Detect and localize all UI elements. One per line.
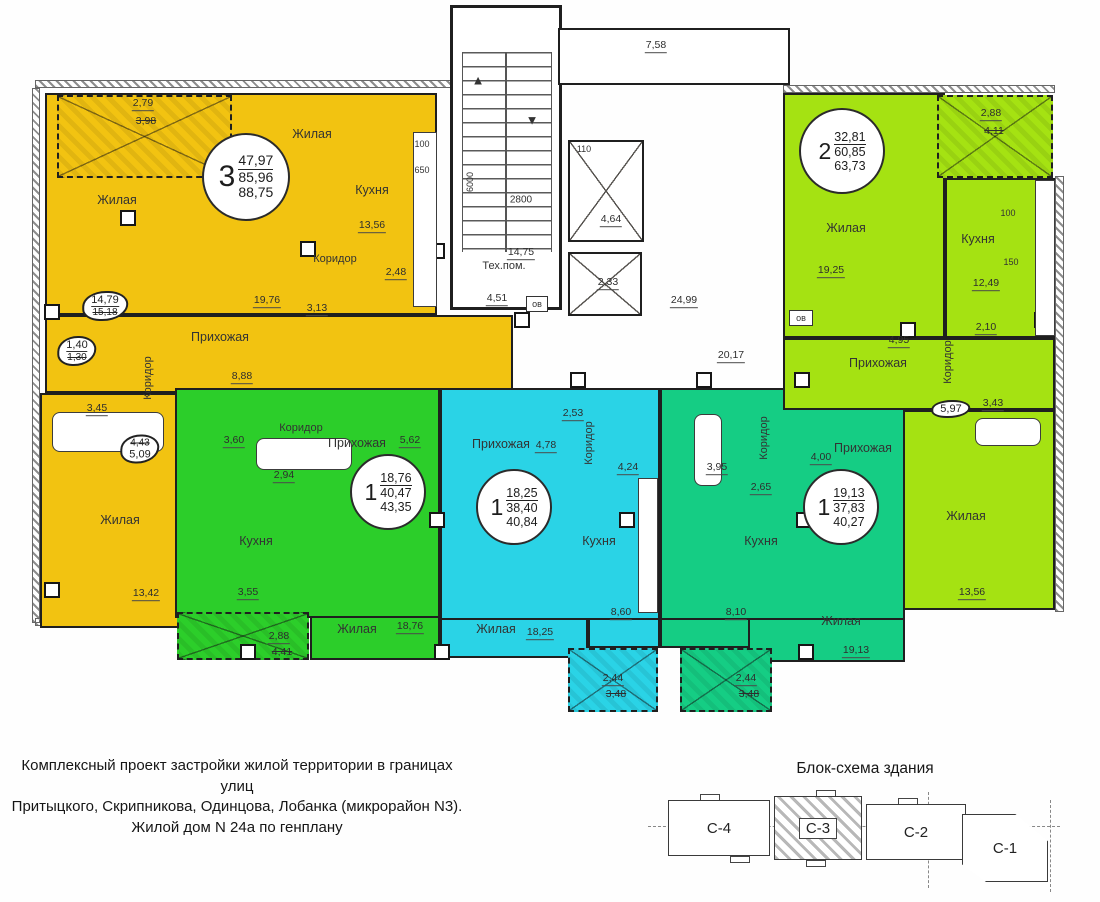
room-area: 12,49 (972, 277, 1000, 291)
room-label: Прихожая (834, 441, 892, 455)
room-label: Кухня (744, 534, 777, 548)
room-area: 19,25 (817, 264, 845, 278)
dimension: 3,13 (306, 302, 328, 316)
room-area: 4,24 (617, 461, 639, 475)
room-label: Жилая (826, 221, 866, 235)
badge-living-area: 19,13 (833, 486, 864, 501)
kitchen-counter (638, 478, 658, 613)
room-area: 4,51 (486, 292, 508, 306)
column-marker (570, 372, 586, 388)
dimension: 2,10 (975, 321, 997, 335)
column-marker (798, 644, 814, 660)
room-area: 4,64 (600, 213, 622, 227)
room-label: Прихожая (191, 330, 249, 344)
scheme-block-c4: С-4 (668, 800, 770, 856)
column-marker (794, 372, 810, 388)
badge-room-count: 1 (817, 494, 830, 521)
scheme-block-label: С-2 (904, 824, 928, 841)
room-area: 2,48 (385, 266, 407, 280)
wall-hatch (783, 85, 1055, 93)
room-area: 19,13 (842, 644, 870, 658)
balcony-area-old: 3,48 (739, 688, 759, 700)
project-line-3: Жилой дом N 24а по генплану (6, 818, 468, 839)
apartment-badge-green: 1 18,76 40,47 43,35 (350, 454, 426, 530)
column-marker (44, 582, 60, 598)
badge-total-area: 63,73 (834, 159, 865, 173)
balcony-area-old: 3,98 (136, 115, 156, 127)
room-label: Кухня (582, 534, 615, 548)
ov-closet-core: ов (526, 296, 548, 312)
apartment-badge-lime: 2 32,81 60,85 63,73 (799, 108, 885, 194)
room-area: 18,25 (526, 626, 554, 640)
room-area: 13,56 (958, 586, 986, 600)
badge-living-area: 47,97 (238, 153, 273, 170)
scheme-block-c2: С-2 (866, 804, 966, 860)
room-area: 2,33 (597, 276, 619, 290)
stair-down-arrow: ▼ (526, 113, 539, 128)
scheme-block-label: С-3 (799, 818, 837, 839)
room-label: Коридор (583, 421, 595, 464)
room-area: 24,99 (670, 294, 698, 308)
scheme-notch (806, 860, 826, 867)
balcony-area: 2,79 (132, 97, 154, 111)
room-label: Коридор (942, 340, 954, 383)
dimension: 19,76 (253, 294, 281, 308)
room-area: 4,95 (888, 334, 910, 348)
area-new: 14,79 (91, 294, 119, 307)
balcony-teal (680, 648, 772, 712)
bathtub (694, 414, 722, 486)
room-label: Жилая (946, 509, 986, 523)
apartment-teal-kitchen-ext (660, 618, 752, 648)
balcony-area: 2,88 (268, 630, 290, 644)
project-line-2: Притыцкого, Скрипникова, Одинцова, Лобан… (6, 797, 468, 818)
scheme-title: Блок-схема здания (655, 760, 1075, 778)
wall-hatch (35, 80, 457, 88)
balcony-area-old: 4,41 (272, 646, 292, 658)
dimension: 3,55 (237, 586, 259, 600)
badge-living-area: 32,81 (834, 130, 865, 145)
room-label: Прихожая (849, 356, 907, 370)
room-area: 3,43 (982, 397, 1004, 411)
balcony-area: 2,44 (735, 672, 757, 686)
room-label: Кухня (239, 534, 272, 548)
scheme-block-c1: С-1 (962, 814, 1048, 882)
project-description: Комплексный проект застройки жилой терри… (6, 756, 468, 839)
room-area: 5,62 (399, 434, 421, 448)
room-label: Коридор (313, 253, 356, 265)
apartment-orange-hall (45, 315, 513, 393)
badge-total-area: 88,75 (238, 185, 273, 201)
room-area: 8,88 (231, 370, 253, 384)
dimension: 110 (577, 144, 591, 154)
badge-heated-area: 38,40 (506, 501, 537, 515)
appliance-dim: 100 (1000, 208, 1015, 218)
apartment-badge-teal: 1 19,13 37,83 40,27 (803, 469, 879, 545)
column-marker (120, 210, 136, 226)
badge-heated-area: 60,85 (834, 145, 865, 159)
room-label: Коридор (279, 422, 322, 434)
room-label: Жилая (337, 622, 377, 636)
room-area: 3,60 (223, 434, 245, 448)
dimension: 7,58 (645, 39, 667, 53)
room-label: Кухня (355, 183, 388, 197)
badge-room-count: 1 (490, 494, 503, 521)
bathtub (975, 418, 1041, 446)
badge-total-area: 40,27 (833, 515, 864, 529)
dimension: 2,94 (273, 469, 295, 483)
appliance-dim: 650 (414, 165, 429, 175)
room-label: Коридор (142, 356, 154, 399)
room-area: 20,17 (717, 349, 745, 363)
room-label: Жилая (97, 193, 137, 207)
scheme-notch (730, 856, 750, 863)
scheme-block-c3-highlighted: С-3 (774, 796, 862, 860)
badge-living-area: 18,25 (506, 486, 537, 501)
badge-total-area: 40,84 (506, 515, 537, 529)
scheme-block-label: С-4 (707, 820, 731, 837)
scheme-axis (1050, 800, 1051, 892)
room-label: Жилая (292, 127, 332, 141)
floor-plan-sheet: ▲ ▼ ов ов 3 47,97 85,96 88,75 1 18,76 4 (0, 0, 1100, 902)
kitchen-counter (1035, 180, 1055, 336)
area-old: 1,30 (67, 352, 86, 363)
badge-room-count: 2 (818, 138, 831, 165)
room-area: 4,78 (535, 439, 557, 453)
column-marker (619, 512, 635, 528)
room-label: Жилая (821, 614, 861, 628)
room-label: Коридор (758, 416, 770, 459)
area-new: 5,09 (129, 449, 150, 461)
badge-heated-area: 37,83 (833, 501, 864, 515)
room-area: 3,95 (706, 461, 728, 475)
balcony-area-old: 4,11 (984, 125, 1004, 137)
appliance-dim: 150 (1003, 257, 1018, 267)
column-marker (240, 644, 256, 660)
room-label: Кухня (961, 232, 994, 246)
room-area: 3,45 (86, 402, 108, 416)
area-old: 4,43 (130, 438, 149, 449)
stair-up-arrow: ▲ (472, 73, 485, 88)
badge-heated-area: 85,96 (238, 170, 273, 186)
apartment-badge-orange: 3 47,97 85,96 88,75 (202, 133, 290, 221)
badge-room-count: 3 (219, 160, 236, 194)
badge-heated-area: 40,47 (380, 486, 411, 500)
badge-living-area: 18,76 (380, 471, 411, 486)
column-marker (44, 304, 60, 320)
badge-room-count: 1 (364, 479, 377, 506)
room-label: Тех.пом. (482, 260, 525, 272)
apartment-badge-cyan: 1 18,25 38,40 40,84 (476, 469, 552, 545)
dimension: 6000 (465, 172, 475, 192)
column-marker (696, 372, 712, 388)
project-line-1: Комплексный проект застройки жилой терри… (6, 756, 468, 797)
balcony-area-old: 3,48 (606, 688, 626, 700)
room-label: Прихожая (472, 437, 530, 451)
room-label: Жилая (100, 513, 140, 527)
apartment-cyan-kitchen-ext (588, 618, 660, 648)
balcony-area: 2,44 (602, 672, 624, 686)
wall-hatch (1055, 176, 1064, 612)
ov-closet-lime: ов (789, 310, 813, 326)
room-area: 14,75 (507, 246, 535, 260)
column-marker (429, 512, 445, 528)
room-label: Прихожая (328, 436, 386, 450)
top-corridor (558, 28, 790, 85)
dimension: 4,00 (810, 451, 832, 465)
area-old: 15,18 (92, 307, 117, 318)
room-area: 8,10 (725, 606, 747, 620)
dimension: 2,53 (562, 407, 584, 421)
room-area: 13,42 (132, 587, 160, 601)
kitchen-counter (413, 132, 437, 307)
room-area: 18,76 (396, 620, 424, 634)
dimension: 2,65 (750, 481, 772, 495)
column-marker (514, 312, 530, 328)
balcony-area: 2,88 (980, 107, 1002, 121)
area-new: 5,97 (940, 403, 961, 415)
area-new: 1,40 (66, 339, 87, 352)
scheme-block-label: С-1 (993, 840, 1017, 857)
dimension: 2800 (510, 195, 532, 206)
room-label: Жилая (476, 622, 516, 636)
wall-hatch (32, 88, 40, 623)
room-area: 13,56 (358, 219, 386, 233)
stair-divider (505, 52, 507, 252)
column-marker (434, 644, 450, 660)
room-area: 8,60 (610, 606, 632, 620)
appliance-dim: 100 (414, 139, 429, 149)
badge-total-area: 43,35 (380, 500, 411, 514)
apartment-lime-hall (783, 338, 1055, 410)
